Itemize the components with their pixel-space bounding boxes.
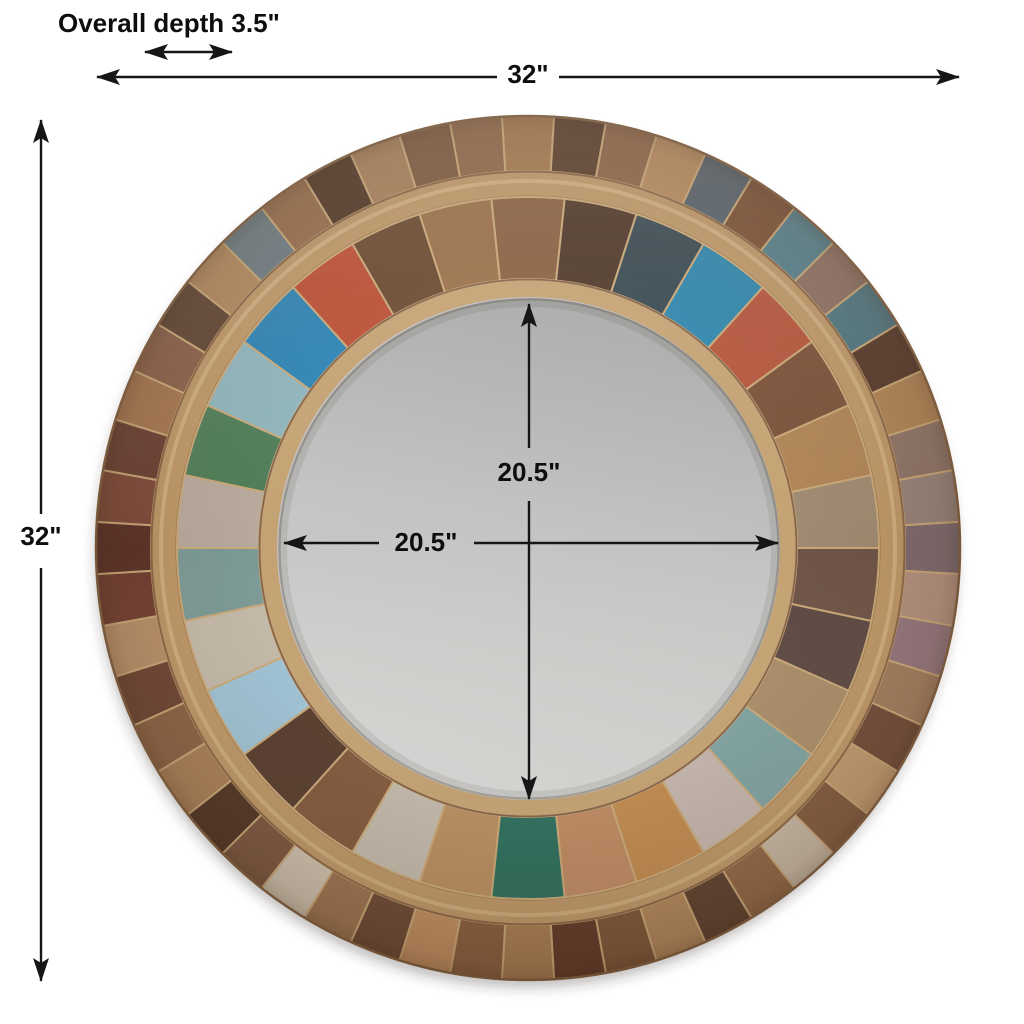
frame-block (96, 522, 152, 574)
frame-block (450, 117, 505, 177)
frame-block (491, 816, 564, 899)
mirror-dimension-illustration (0, 0, 1024, 1024)
mirror-width-label: 20.5" (386, 528, 466, 557)
overall-height-label: 32" (7, 522, 75, 551)
frame-block (502, 924, 554, 980)
frame-block (491, 197, 564, 280)
frame-block (899, 470, 959, 525)
frame-block (904, 522, 960, 574)
overall-depth-label: Overall depth 3.5" (58, 9, 280, 38)
frame-block (97, 571, 157, 626)
mirror-height-label: 20.5" (489, 458, 569, 487)
frame-block (502, 116, 554, 172)
overall-width-label: 32" (494, 60, 562, 89)
product-dimension-diagram: Overall depth 3.5" 32" 32" 20.5" 20.5" (0, 0, 1024, 1024)
frame-block (551, 919, 606, 979)
